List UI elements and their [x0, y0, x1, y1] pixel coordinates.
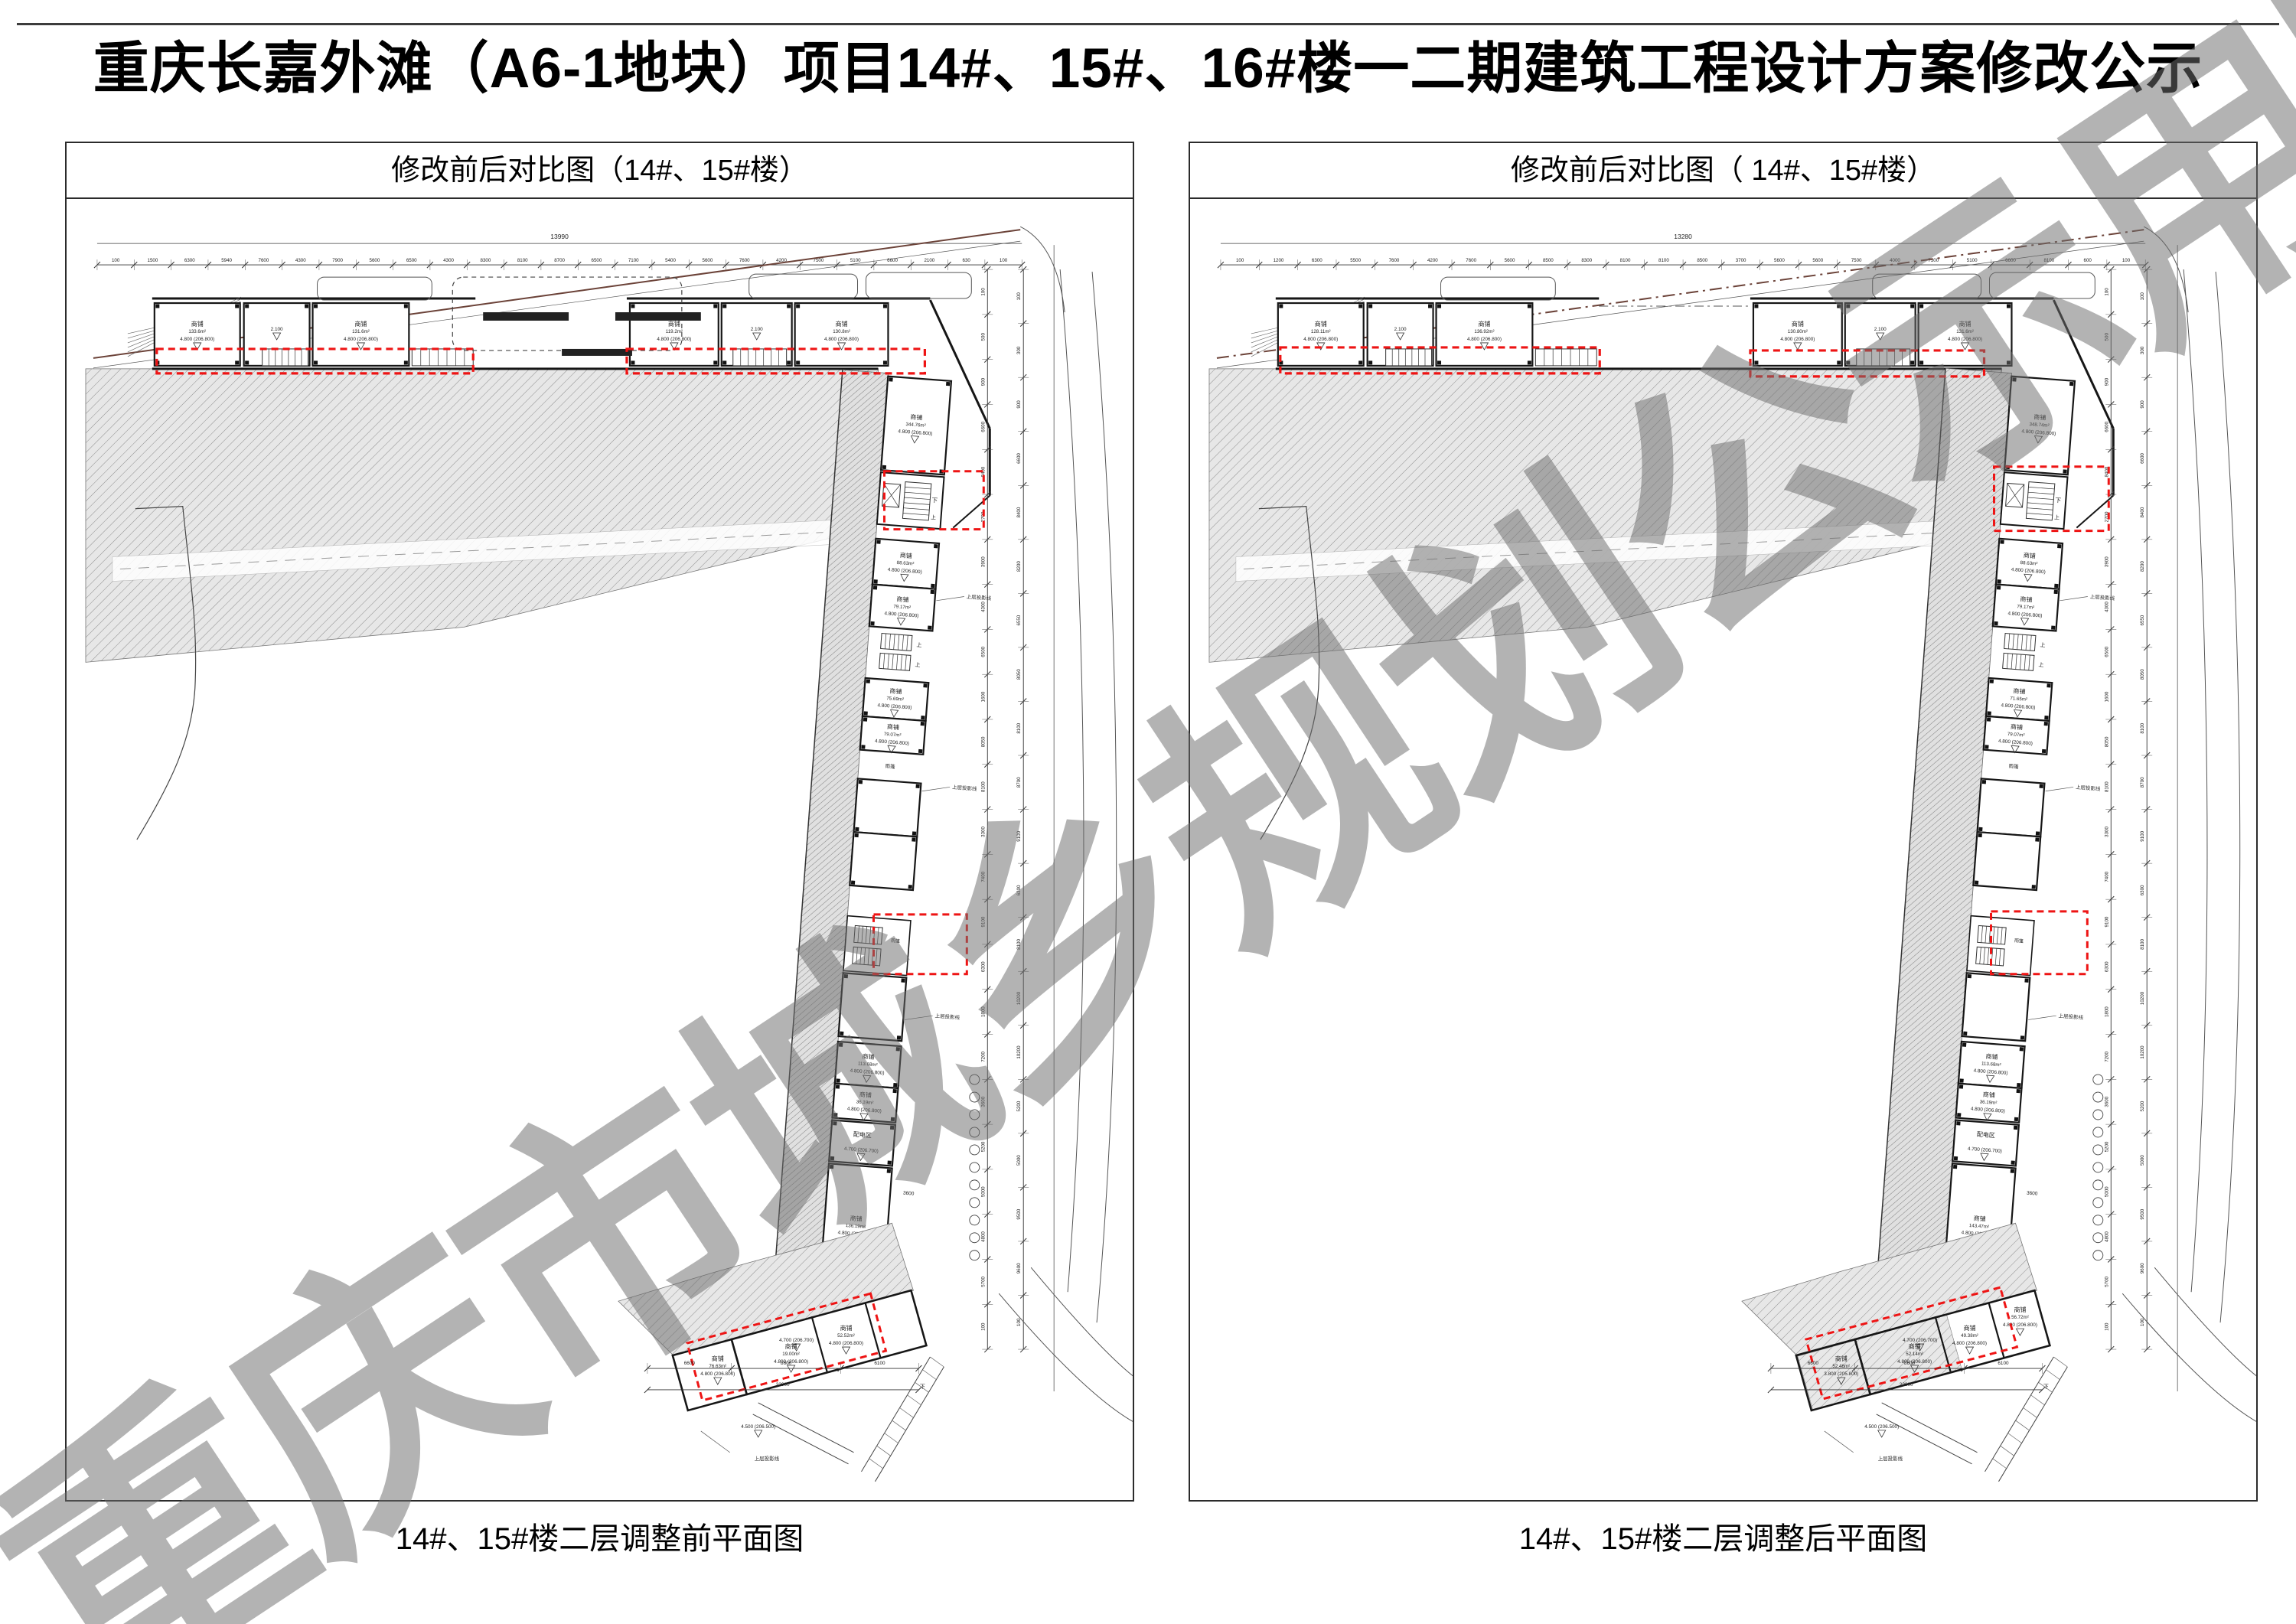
svg-text:7900: 7900 — [332, 258, 343, 263]
svg-text:100: 100 — [2140, 292, 2145, 301]
svg-text:4.500 (206.500): 4.500 (206.500) — [1864, 1424, 1899, 1430]
svg-text:6100: 6100 — [874, 1361, 885, 1366]
svg-text:7600: 7600 — [259, 258, 269, 263]
svg-text:10200: 10200 — [2140, 1045, 2145, 1059]
svg-text:4.800 (206.800): 4.800 (206.800) — [824, 337, 859, 342]
svg-text:商铺: 商铺 — [910, 413, 923, 421]
canopy-zone: 雨篷 — [2008, 762, 2019, 770]
tree-markers — [2093, 1075, 2103, 1260]
svg-text:雨篷: 雨篷 — [885, 762, 895, 770]
svg-text:4200: 4200 — [1427, 258, 1438, 263]
svg-text:6500: 6500 — [592, 258, 602, 263]
svg-text:9100: 9100 — [980, 916, 986, 927]
svg-text:5600: 5600 — [1505, 258, 1515, 263]
svg-text:1200: 1200 — [1274, 258, 1284, 263]
svg-text:商铺: 商铺 — [191, 320, 204, 328]
svg-text:6600: 6600 — [1808, 1361, 1819, 1366]
svg-text:商铺: 商铺 — [899, 551, 912, 559]
svg-text:8100: 8100 — [980, 781, 986, 792]
svg-text:5400: 5400 — [665, 258, 676, 263]
svg-text:8050: 8050 — [980, 736, 986, 747]
svg-text:8700: 8700 — [554, 258, 565, 263]
room: 商铺344.76m²4.800 (206.800) — [881, 377, 951, 475]
svg-text:5600: 5600 — [370, 258, 380, 263]
svg-text:商铺: 商铺 — [896, 595, 909, 603]
svg-text:100: 100 — [2104, 288, 2109, 296]
svg-text:上层投影线: 上层投影线 — [2058, 1012, 2084, 1020]
svg-text:9100: 9100 — [2104, 916, 2109, 927]
svg-text:9600: 9600 — [1016, 1263, 1022, 1273]
svg-text:5200: 5200 — [2140, 1101, 2145, 1111]
room: 商铺113.68m²4.800 (206.800) — [835, 1042, 902, 1088]
svg-text:5600: 5600 — [1774, 258, 1785, 263]
room — [838, 973, 906, 1041]
foot-wing: 商铺76.63m²4.800 (206.800)商铺19.00m²4.800 (… — [618, 1223, 926, 1410]
svg-text:130.8m²: 130.8m² — [833, 329, 850, 334]
svg-text:4.500 (206.500): 4.500 (206.500) — [741, 1424, 775, 1430]
dimension-chain-top: 1328010012006300550076004200760056008500… — [1218, 233, 2148, 270]
svg-text:4.800 (206.800): 4.800 (206.800) — [180, 337, 214, 342]
svg-text:5000: 5000 — [1016, 1155, 1022, 1166]
svg-text:5000: 5000 — [980, 1186, 986, 1197]
svg-text:7500: 7500 — [1851, 258, 1862, 263]
room: 商铺128.11m²4.800 (206.800) — [1278, 303, 1364, 366]
room — [1973, 832, 2040, 890]
svg-text:8200: 8200 — [1016, 561, 1022, 572]
svg-text:8400: 8400 — [2140, 507, 2145, 517]
panel-before-header: 修改前后对比图（14#、15#楼） — [67, 143, 1133, 199]
svg-text:1800: 1800 — [980, 1006, 986, 1017]
room: 商铺79.07m²4.800 (206.800) — [860, 716, 926, 755]
svg-text:4300: 4300 — [443, 258, 454, 263]
svg-text:雨篷: 雨篷 — [2008, 762, 2019, 770]
panel-after: 修改前后对比图（ 14#、15#楼） 132801001200630055007… — [1189, 142, 2258, 1502]
svg-text:8300: 8300 — [1581, 258, 1592, 263]
page-title: 重庆长嘉外滩（A6-1地块）项目14#、15#、16#楼一二期建筑工程设计方案修… — [0, 23, 2296, 104]
dimension-ladder-right: 1005009006600840027003900430065001600805… — [980, 245, 1054, 1391]
room: 商铺348.74m²4.800 (206.800) — [2004, 377, 2075, 475]
room: 商铺133.6m²4.800 (206.800) — [155, 303, 240, 366]
svg-text:52.14m²: 52.14m² — [1906, 1352, 1923, 1357]
svg-text:5000: 5000 — [2140, 1155, 2145, 1166]
svg-text:3600: 3600 — [903, 1191, 915, 1197]
svg-text:商铺: 商铺 — [859, 1091, 872, 1099]
svg-text:52.52m²: 52.52m² — [837, 1333, 855, 1339]
dimension-chain-top: 1399010015006300594076004300790056006500… — [94, 233, 1025, 270]
room: 配电区4.700 (206.700) — [1952, 1120, 2019, 1166]
svg-text:9500: 9500 — [1016, 1208, 1022, 1219]
svg-text:商铺: 商铺 — [1478, 320, 1490, 328]
room: 商铺136.92m²4.800 (206.800) — [1437, 303, 1533, 366]
svg-text:500: 500 — [980, 333, 986, 341]
room — [854, 778, 921, 836]
top-strip: 商铺133.6m²4.800 (206.800)2.100商铺131.6m²4.… — [128, 272, 971, 369]
svg-text:6300: 6300 — [980, 961, 986, 972]
svg-text:9500: 9500 — [2140, 1208, 2145, 1219]
stairs2-zone: 上上 — [2003, 634, 2047, 672]
svg-text:7600: 7600 — [1466, 258, 1476, 263]
svg-text:8200: 8200 — [2140, 561, 2145, 572]
svg-text:4300: 4300 — [295, 258, 306, 263]
room: 商铺79.17m²4.800 (206.800) — [869, 584, 936, 631]
svg-text:下: 下 — [931, 497, 938, 504]
svg-text:49.38m²: 49.38m² — [1961, 1333, 1978, 1339]
room: 商铺79.07m²4.800 (206.800) — [1984, 716, 2050, 755]
svg-text:7600: 7600 — [739, 258, 750, 263]
svg-text:商铺: 商铺 — [889, 686, 902, 695]
svg-text:5100: 5100 — [1967, 258, 1978, 263]
svg-text:7600: 7600 — [1389, 258, 1400, 263]
svg-text:上层投影线: 上层投影线 — [967, 593, 993, 602]
svg-text:22000: 22000 — [776, 1382, 790, 1388]
svg-text:900: 900 — [1016, 400, 1022, 409]
svg-text:5600: 5600 — [1812, 258, 1823, 263]
svg-text:10200: 10200 — [1016, 991, 1022, 1005]
svg-text:9100: 9100 — [1016, 830, 1022, 841]
svg-text:6600: 6600 — [1016, 453, 1022, 464]
svg-text:1600: 1600 — [980, 691, 986, 702]
svg-text:133.6m²: 133.6m² — [188, 329, 206, 334]
room: 商铺71.65m²4.800 (206.800) — [1986, 678, 2052, 721]
terrain-hatch — [1209, 369, 2002, 662]
floor-plan-after: 1328010012006300550076004200760056008500… — [1190, 199, 2256, 1498]
svg-text:4.800 (206.800): 4.800 (206.800) — [829, 1341, 863, 1346]
svg-text:商铺: 商铺 — [1964, 1324, 1976, 1332]
room — [1978, 778, 2045, 836]
svg-text:900: 900 — [2140, 400, 2145, 409]
stair-zone: 下上 — [2001, 472, 2068, 529]
svg-text:上: 上 — [2038, 661, 2044, 668]
svg-text:5600: 5600 — [703, 258, 713, 263]
svg-text:900: 900 — [2104, 377, 2109, 386]
svg-text:4.800 (206.800): 4.800 (206.800) — [657, 337, 691, 342]
svg-text:3.800 (205.800): 3.800 (205.800) — [1824, 1371, 1858, 1377]
svg-text:上: 上 — [2040, 641, 2046, 648]
svg-text:4.700 (206.700): 4.700 (206.700) — [1903, 1338, 1937, 1343]
svg-text:7200: 7200 — [980, 1051, 986, 1061]
room: 商铺88.63m²4.800 (206.800) — [872, 539, 939, 589]
svg-text:商铺: 商铺 — [850, 1214, 863, 1222]
svg-text:上层投影线: 上层投影线 — [755, 1455, 780, 1462]
svg-text:6600: 6600 — [2104, 421, 2109, 432]
stairzone-zone: 雨篷 — [843, 916, 911, 976]
svg-text:100: 100 — [1000, 258, 1008, 263]
svg-text:8100: 8100 — [2140, 939, 2145, 950]
tree-markers — [970, 1075, 980, 1260]
svg-text:5100: 5100 — [850, 258, 861, 263]
svg-text:300: 300 — [1016, 346, 1022, 354]
svg-text:56.72m²: 56.72m² — [2011, 1315, 2029, 1320]
svg-text:1500: 1500 — [148, 258, 158, 263]
svg-text:500: 500 — [2104, 333, 2109, 341]
svg-text:商铺: 商铺 — [1792, 320, 1804, 328]
svg-text:商铺: 商铺 — [1959, 320, 1971, 328]
svg-text:100: 100 — [980, 1322, 986, 1331]
room: 商铺79.17m²4.800 (206.800) — [1993, 584, 2060, 631]
svg-text:商铺: 商铺 — [2011, 722, 2024, 731]
svg-text:商铺: 商铺 — [840, 1324, 853, 1332]
room: 商铺130.80m²4.800 (206.800) — [1753, 303, 1842, 366]
svg-text:商铺: 商铺 — [2013, 686, 2026, 695]
stairzone-zone: 雨篷 — [1967, 916, 2034, 976]
svg-text:3900: 3900 — [2104, 556, 2109, 567]
room: 商铺88.63m²4.800 (206.800) — [1996, 539, 2063, 589]
svg-text:119.2m²: 119.2m² — [666, 329, 683, 334]
svg-text:8100: 8100 — [1016, 939, 1022, 950]
svg-text:300: 300 — [2140, 346, 2145, 354]
room: 配电区4.700 (206.700) — [829, 1120, 895, 1166]
canopy-zone: 雨篷 — [885, 762, 895, 770]
svg-text:6300: 6300 — [2104, 961, 2109, 972]
room: 商铺130.8m²4.800 (206.800) — [795, 303, 889, 366]
svg-text:5940: 5940 — [221, 258, 232, 263]
panel-before: 修改前后对比图（14#、15#楼） 1399010015006300594076… — [65, 142, 1134, 1502]
room — [1962, 973, 2030, 1041]
svg-text:4000: 4000 — [1890, 258, 1900, 263]
svg-text:6600: 6600 — [980, 421, 986, 432]
svg-text:商铺: 商铺 — [354, 320, 367, 328]
svg-text:3600: 3600 — [980, 1096, 986, 1107]
stairs2-zone: 上上 — [879, 634, 923, 672]
svg-text:上: 上 — [916, 641, 922, 648]
svg-text:6100: 6100 — [1998, 1361, 2009, 1366]
svg-text:8050: 8050 — [2104, 736, 2109, 747]
svg-text:商铺: 商铺 — [1973, 1214, 1986, 1222]
svg-text:10200: 10200 — [2140, 991, 2145, 1005]
svg-text:1600: 1600 — [2104, 691, 2109, 702]
svg-text:8300: 8300 — [481, 258, 491, 263]
svg-text:商铺: 商铺 — [862, 1052, 875, 1061]
dimension-ladder-right: 1005009006600840027003900430065001600805… — [2104, 245, 2177, 1391]
svg-text:上层投影线: 上层投影线 — [1878, 1455, 1903, 1462]
svg-text:2.100: 2.100 — [1874, 327, 1887, 332]
svg-text:6600: 6600 — [684, 1361, 696, 1366]
svg-text:配电区: 配电区 — [1977, 1130, 1996, 1140]
svg-text:8500: 8500 — [1697, 258, 1707, 263]
svg-text:1800: 1800 — [2104, 1006, 2109, 1017]
svg-text:136.92m²: 136.92m² — [1474, 329, 1494, 334]
svg-text:4300: 4300 — [980, 602, 986, 612]
svg-text:8100: 8100 — [517, 258, 528, 263]
svg-text:4800: 4800 — [980, 1231, 986, 1242]
svg-text:下: 下 — [920, 1384, 925, 1390]
svg-text:4800: 4800 — [2104, 1231, 2109, 1242]
svg-text:22000: 22000 — [1900, 1382, 1913, 1388]
plan-root: 1399010015006300594076004300790056006500… — [86, 227, 1133, 1482]
svg-text:6300: 6300 — [1016, 885, 1022, 895]
svg-text:7400: 7400 — [980, 871, 986, 882]
panel-after-header: 修改前后对比图（ 14#、15#楼） — [1190, 143, 2256, 199]
svg-text:6500: 6500 — [980, 646, 986, 657]
room: 商铺131.6m²4.800 (206.800) — [1919, 303, 2012, 366]
svg-text:3700: 3700 — [1736, 258, 1746, 263]
svg-text:6500: 6500 — [2104, 646, 2109, 657]
svg-text:商铺: 商铺 — [1982, 1091, 1995, 1099]
svg-text:6300: 6300 — [1312, 258, 1322, 263]
svg-text:130.80m²: 130.80m² — [1788, 329, 1808, 334]
svg-text:商铺: 商铺 — [2014, 1306, 2026, 1313]
svg-text:100: 100 — [1016, 292, 1022, 301]
floor-plan-before: 1399010015006300594076004300790056006500… — [67, 199, 1133, 1498]
svg-text:8100: 8100 — [1658, 258, 1669, 263]
svg-text:8100: 8100 — [2104, 781, 2109, 792]
svg-text:配电区: 配电区 — [853, 1130, 872, 1140]
svg-text:4.800 (206.800): 4.800 (206.800) — [344, 337, 378, 342]
svg-text:4.800 (206.800): 4.800 (206.800) — [1303, 337, 1338, 342]
svg-text:7400: 7400 — [2104, 871, 2109, 882]
svg-text:上层投影线: 上层投影线 — [2090, 593, 2116, 602]
svg-text:8100: 8100 — [1016, 722, 1022, 733]
svg-text:100: 100 — [2122, 258, 2131, 263]
notice-sheet: 重庆长嘉外滩（A6-1地块）项目14#、15#、16#楼一二期建筑工程设计方案修… — [0, 0, 2296, 1624]
svg-text:商铺: 商铺 — [887, 722, 900, 731]
svg-text:8100: 8100 — [1620, 258, 1631, 263]
plan-root: 1328010012006300550076004200760056008500… — [1209, 227, 2256, 1482]
svg-text:4.800 (206.800): 4.800 (206.800) — [1952, 1341, 1987, 1346]
svg-text:8050: 8050 — [2140, 669, 2145, 680]
svg-text:13990: 13990 — [550, 233, 569, 240]
svg-text:上层投影线: 上层投影线 — [934, 1012, 960, 1020]
svg-text:商铺: 商铺 — [2023, 551, 2036, 559]
room: 商铺113.68m²4.800 (206.800) — [1958, 1042, 2025, 1088]
svg-text:5200: 5200 — [2104, 1141, 2109, 1152]
svg-text:6300: 6300 — [2140, 885, 2145, 895]
svg-text:商铺: 商铺 — [2020, 595, 2033, 603]
svg-text:上层投影线: 上层投影线 — [2076, 784, 2102, 792]
svg-text:5700: 5700 — [980, 1276, 986, 1286]
svg-text:5500: 5500 — [1350, 258, 1361, 263]
svg-text:100: 100 — [1236, 258, 1244, 263]
svg-text:商铺: 商铺 — [1315, 320, 1327, 328]
top-strip: 商铺128.11m²4.800 (206.800)2.100商铺136.92m²… — [1251, 272, 2095, 369]
svg-text:商铺: 商铺 — [1985, 1052, 1998, 1061]
room: 商铺75.69m²4.800 (206.800) — [863, 678, 928, 721]
svg-text:下: 下 — [2055, 497, 2062, 504]
svg-text:3600: 3600 — [2027, 1191, 2038, 1197]
svg-text:4300: 4300 — [2104, 602, 2109, 612]
svg-text:6550: 6550 — [2140, 615, 2145, 625]
svg-text:6600: 6600 — [2140, 453, 2145, 464]
svg-text:100: 100 — [980, 288, 986, 296]
svg-text:4.800 (206.800): 4.800 (206.800) — [1948, 337, 1982, 342]
svg-text:4.800 (206.800): 4.800 (206.800) — [700, 1371, 735, 1377]
svg-text:3900: 3900 — [980, 556, 986, 567]
svg-text:10200: 10200 — [1016, 1045, 1022, 1059]
svg-text:8600: 8600 — [781, 1361, 792, 1366]
svg-text:900: 900 — [980, 377, 986, 386]
svg-text:2.100: 2.100 — [271, 327, 283, 332]
svg-text:3300: 3300 — [980, 827, 986, 837]
svg-text:4.700 (206.700): 4.700 (206.700) — [779, 1338, 814, 1343]
svg-text:128.11m²: 128.11m² — [1311, 329, 1331, 334]
svg-text:商铺: 商铺 — [836, 320, 848, 328]
terrain-hatch — [86, 369, 879, 662]
svg-text:8700: 8700 — [1016, 777, 1022, 788]
svg-text:9600: 9600 — [2140, 1263, 2145, 1273]
svg-text:商铺: 商铺 — [712, 1355, 724, 1362]
caption-after: 14#、15#楼二层调整后平面图 — [1189, 1514, 2258, 1558]
svg-text:8100: 8100 — [2043, 258, 2054, 263]
svg-text:6550: 6550 — [1016, 615, 1022, 625]
svg-text:6500: 6500 — [406, 258, 417, 263]
svg-text:19.00m²: 19.00m² — [782, 1352, 800, 1357]
svg-text:3600: 3600 — [2104, 1096, 2109, 1107]
svg-text:8700: 8700 — [2140, 777, 2145, 788]
svg-text:5200: 5200 — [1016, 1101, 1022, 1111]
svg-text:8400: 8400 — [1016, 507, 1022, 517]
svg-text:2100: 2100 — [924, 258, 934, 263]
svg-text:商铺: 商铺 — [2033, 413, 2047, 421]
room: 商铺36.19m²4.800 (206.800) — [1955, 1084, 2021, 1123]
caption-before: 14#、15#楼二层调整前平面图 — [65, 1514, 1134, 1558]
room: 商铺131.6m²4.800 (206.800) — [313, 303, 409, 366]
svg-text:4.800 (206.800): 4.800 (206.800) — [2003, 1322, 2037, 1328]
svg-text:7200: 7200 — [2104, 1051, 2109, 1061]
svg-text:上: 上 — [915, 661, 921, 668]
svg-text:100: 100 — [112, 258, 120, 263]
room — [850, 832, 917, 890]
svg-text:8050: 8050 — [1016, 669, 1022, 680]
svg-text:商铺: 商铺 — [668, 320, 680, 328]
svg-text:131.6m²: 131.6m² — [1956, 329, 1974, 334]
room: 商铺36.19m²4.800 (206.800) — [832, 1084, 898, 1123]
svg-text:600: 600 — [2084, 258, 2092, 263]
svg-text:5200: 5200 — [980, 1141, 986, 1152]
svg-text:3300: 3300 — [2104, 827, 2109, 837]
svg-text:630: 630 — [963, 258, 971, 263]
svg-text:100: 100 — [2104, 1322, 2109, 1331]
svg-text:5700: 5700 — [2104, 1276, 2109, 1286]
svg-text:8500: 8500 — [1543, 258, 1554, 263]
svg-text:商铺: 商铺 — [1835, 1355, 1848, 1362]
svg-text:2.100: 2.100 — [751, 327, 763, 332]
svg-text:下: 下 — [2043, 1384, 2049, 1390]
svg-text:13280: 13280 — [1674, 233, 1692, 240]
svg-text:6300: 6300 — [184, 258, 195, 263]
stair-zone: 下上 — [877, 472, 944, 529]
svg-text:4.800 (206.800): 4.800 (206.800) — [1780, 337, 1815, 342]
svg-text:9100: 9100 — [2140, 830, 2145, 841]
svg-text:5000: 5000 — [2104, 1186, 2109, 1197]
svg-text:8600: 8600 — [1904, 1361, 1916, 1366]
svg-text:2.100: 2.100 — [1394, 327, 1407, 332]
svg-text:上层投影线: 上层投影线 — [952, 784, 978, 792]
svg-text:131.6m²: 131.6m² — [352, 329, 370, 334]
svg-text:4.800 (206.800): 4.800 (206.800) — [1467, 337, 1502, 342]
svg-text:7100: 7100 — [628, 258, 639, 263]
svg-text:8100: 8100 — [2140, 722, 2145, 733]
